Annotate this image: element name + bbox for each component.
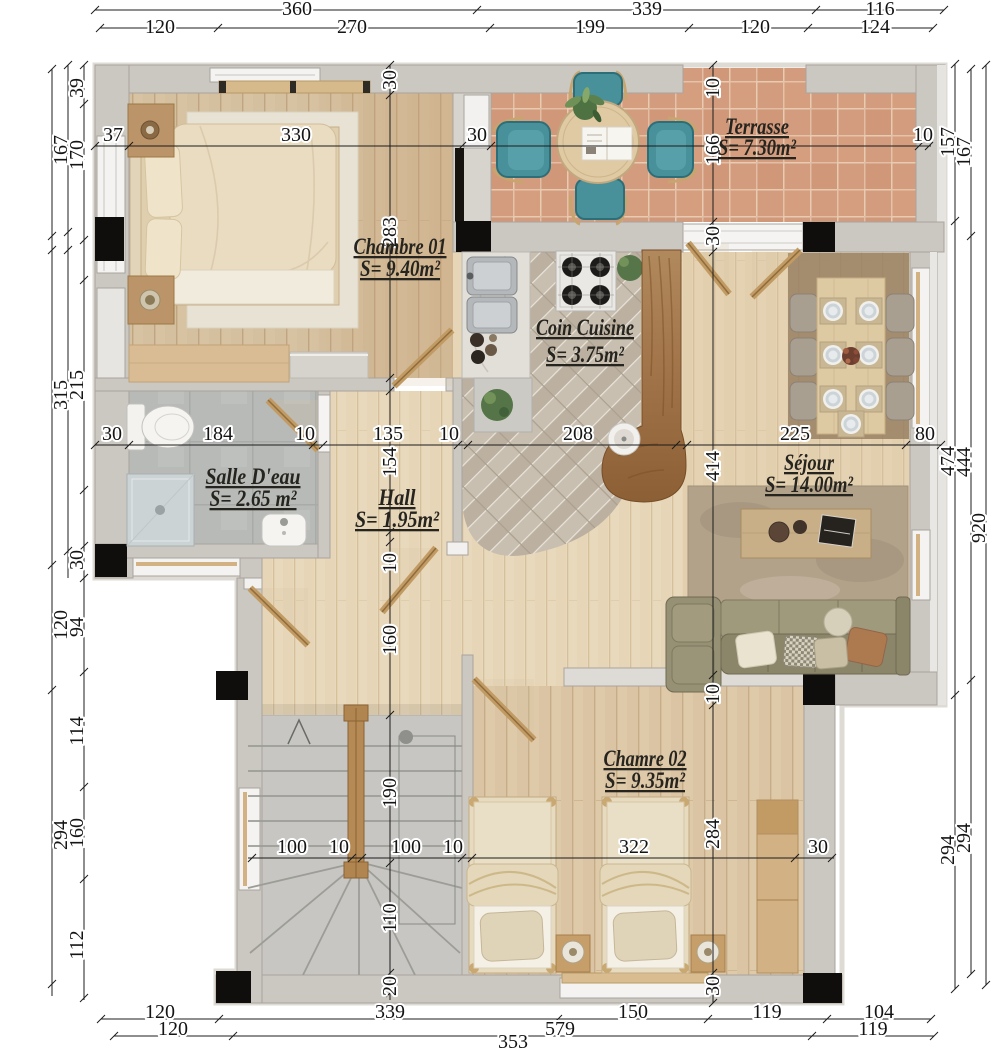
svg-text:199: 199 [575,16,605,38]
svg-text:100: 100 [277,836,307,858]
svg-text:30: 30 [102,423,122,445]
svg-text:10: 10 [379,553,401,573]
svg-text:10: 10 [913,124,933,146]
svg-text:30: 30 [808,836,828,858]
svg-text:208: 208 [563,423,593,445]
svg-text:S= 14.00m²: S= 14.00m² [765,472,854,497]
svg-text:150: 150 [618,1001,648,1023]
svg-text:160: 160 [66,818,88,848]
svg-text:100: 100 [391,836,421,858]
svg-text:135: 135 [373,423,403,445]
svg-text:120: 120 [740,16,770,38]
svg-text:225: 225 [780,423,810,445]
svg-text:S= 2.65 m²: S= 2.65 m² [210,486,298,511]
svg-text:160: 160 [379,625,401,655]
svg-text:S= 9.35m²: S= 9.35m² [605,768,686,793]
svg-text:10: 10 [439,423,459,445]
svg-text:294: 294 [953,823,975,853]
svg-text:S= 9.40m²: S= 9.40m² [360,256,441,281]
svg-text:30: 30 [467,124,487,146]
svg-text:Coin Cuisine: Coin Cuisine [536,315,634,340]
svg-text:10: 10 [329,836,349,858]
svg-text:10: 10 [702,684,724,704]
svg-text:114: 114 [66,716,88,745]
svg-text:330: 330 [281,124,311,146]
svg-text:120: 120 [145,16,175,38]
svg-text:270: 270 [337,16,367,38]
svg-text:120: 120 [158,1018,188,1040]
svg-text:339: 339 [632,0,662,20]
svg-text:184: 184 [203,423,233,445]
svg-text:170: 170 [66,140,88,170]
svg-text:119: 119 [858,1018,887,1040]
svg-text:S= 1.95m²: S= 1.95m² [355,507,440,532]
svg-text:215: 215 [66,370,88,400]
svg-text:80: 80 [915,423,935,445]
svg-text:190: 190 [379,778,401,808]
svg-text:20: 20 [379,976,401,996]
svg-text:30: 30 [702,226,724,246]
svg-text:S= 3.75m²: S= 3.75m² [546,342,625,367]
svg-text:30: 30 [702,976,724,996]
svg-text:444: 444 [953,447,975,477]
svg-text:119: 119 [752,1001,781,1023]
svg-text:37: 37 [103,124,123,146]
svg-text:339: 339 [375,1001,405,1023]
svg-text:920: 920 [968,513,990,543]
svg-text:579: 579 [545,1018,575,1040]
svg-text:124: 124 [860,16,890,38]
svg-text:10: 10 [295,423,315,445]
svg-text:94: 94 [66,617,88,637]
svg-text:30: 30 [379,70,401,90]
svg-text:284: 284 [702,819,724,849]
svg-text:353: 353 [498,1031,528,1048]
svg-text:30: 30 [66,550,88,570]
svg-text:39: 39 [66,78,88,98]
svg-text:414: 414 [702,451,724,481]
svg-text:112: 112 [66,930,88,959]
svg-text:167: 167 [953,137,975,167]
svg-text:360: 360 [282,0,312,20]
svg-text:154: 154 [379,447,401,477]
svg-text:S= 7.30m²: S= 7.30m² [718,135,797,160]
svg-text:110: 110 [379,903,401,932]
svg-text:10: 10 [702,78,724,98]
svg-text:10: 10 [443,836,463,858]
svg-text:322: 322 [619,836,649,858]
